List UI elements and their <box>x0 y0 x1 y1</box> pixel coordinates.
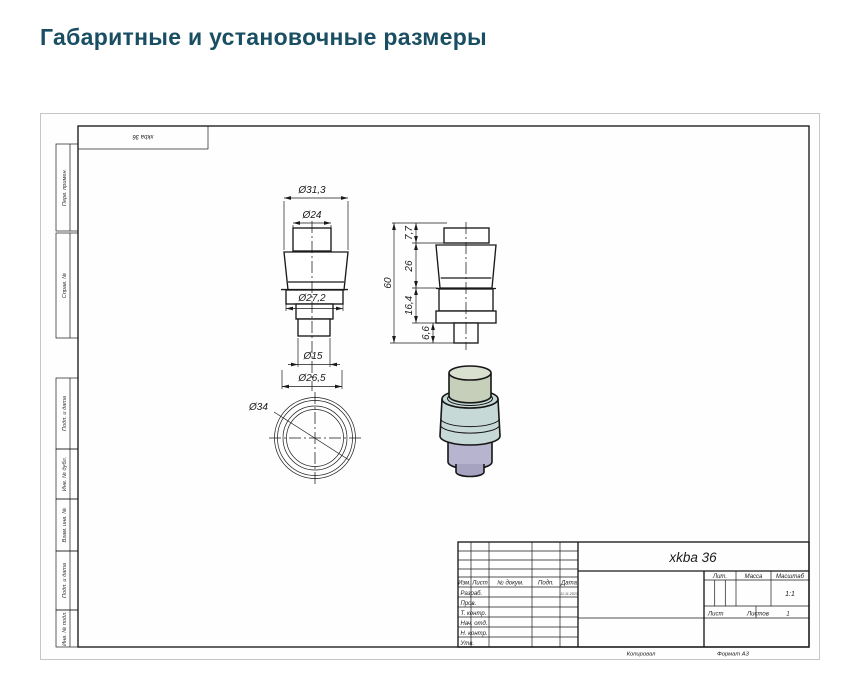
bottom-view: Ø34 <box>248 392 361 484</box>
tb-row-razrab: Разраб. <box>461 591 483 597</box>
dim-h-60: 60 <box>383 277 394 289</box>
top-stamp-designation: xkba 36 <box>132 133 155 139</box>
margin-label-inv-no-podl: Инв. № подл. <box>62 611 68 646</box>
dim-h-6-6: 6,6 <box>421 326 432 340</box>
part-3d-render <box>440 366 500 477</box>
tb-row-t-kontr: Т. контр. <box>461 611 487 617</box>
tb-masshtab-label: Масштаб <box>776 574 805 580</box>
tb-row-utv: Утв. <box>460 641 475 647</box>
tb-row-prov: Пров. <box>461 601 477 607</box>
sheet-footer: Копировал Формат А3 <box>627 652 750 658</box>
tb-row-nach-otd: Нач. отд. <box>461 621 488 627</box>
margin-label-podp-data-2: Подп. и дата <box>62 563 68 598</box>
tb-col-list: Лист <box>471 581 487 587</box>
tb-razrab-date: 11.11.2023 <box>560 592 577 596</box>
tb-designation: xkba 36 <box>668 550 717 565</box>
tb-col-data: Дата <box>560 581 577 587</box>
footer-copied-by: Копировал <box>627 652 657 658</box>
dim-h-16-4: 16,4 <box>404 295 415 315</box>
front-view: Ø31,3 Ø24 Ø27,2 Ø15 Ø26,5 <box>281 185 348 391</box>
tb-col-podp: Подп. <box>538 581 554 587</box>
sheet-frame <box>78 126 809 647</box>
side-view: 60 7,7 26 16,4 6,6 <box>383 222 496 350</box>
dim-dia-34: Ø34 <box>248 402 268 413</box>
margin-label-inv-no-dubl: Инв. № дубл. <box>62 457 68 491</box>
tb-col-izm: Изм. <box>458 581 471 587</box>
tb-massa-label: Масса <box>745 574 763 580</box>
margin-label-vzam-inv-no: Взам. инв. № <box>62 508 68 543</box>
tb-list-label: Лист <box>707 612 723 618</box>
title-block: Изм. Лист № докум. Подп. Дата Разраб. Пр… <box>458 542 809 647</box>
dim-h-26: 26 <box>404 260 415 273</box>
tb-listov-value: 1 <box>786 612 789 618</box>
tb-lit-label: Лит. <box>712 574 727 580</box>
tb-row-n-kontr: Н. контр. <box>461 631 488 637</box>
page-title: Габаритные и установочные размеры <box>40 24 487 51</box>
tb-col-doc-no: № докум. <box>497 580 523 587</box>
tb-scale-value: 1:1 <box>785 591 795 598</box>
margin-graphs: Перв. примен. Справ. № Подп. и дата Инв.… <box>56 144 78 647</box>
dim-dia-31-3: Ø31,3 <box>297 185 326 196</box>
dim-dia-24: Ø24 <box>302 210 322 221</box>
dim-h-7-7: 7,7 <box>404 226 415 240</box>
margin-label-podp-data-1: Подп. и дата <box>62 396 68 431</box>
footer-format: Формат А3 <box>717 652 749 658</box>
tb-listov-label: Листов <box>746 612 769 618</box>
drawing-canvas: xkba 36 Перв. примен. Справ. № Подп. и д… <box>41 114 819 659</box>
dim-dia-15: Ø15 <box>303 351 323 362</box>
margin-label-sprav-no: Справ. № <box>62 273 68 298</box>
margin-label-perv-primen: Перв. примен. <box>62 169 68 206</box>
page: Габаритные и установочные размеры xkba 3… <box>0 0 854 688</box>
drawing-sheet: xkba 36 Перв. примен. Справ. № Подп. и д… <box>40 113 820 660</box>
